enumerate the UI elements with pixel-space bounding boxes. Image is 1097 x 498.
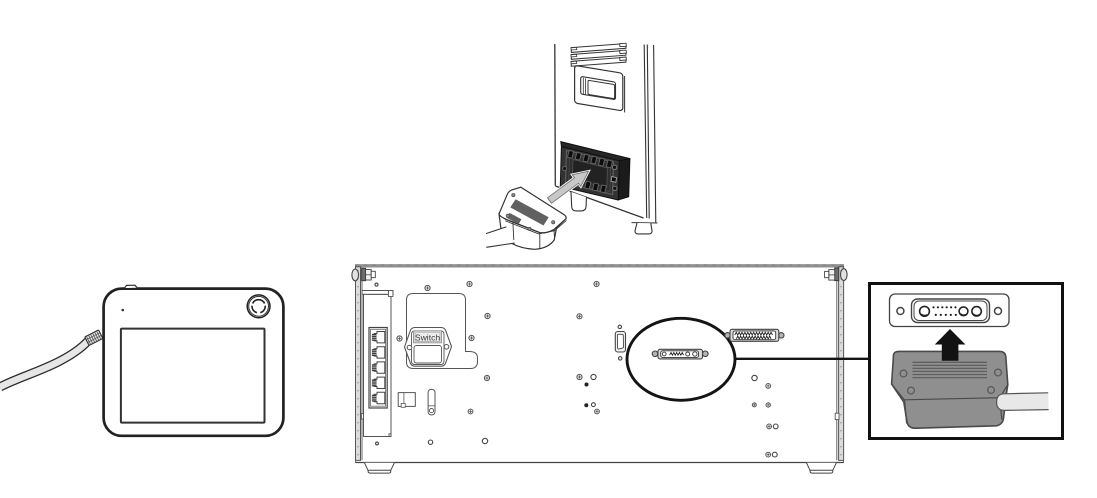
svg-text:Switch: Switch — [415, 333, 441, 343]
